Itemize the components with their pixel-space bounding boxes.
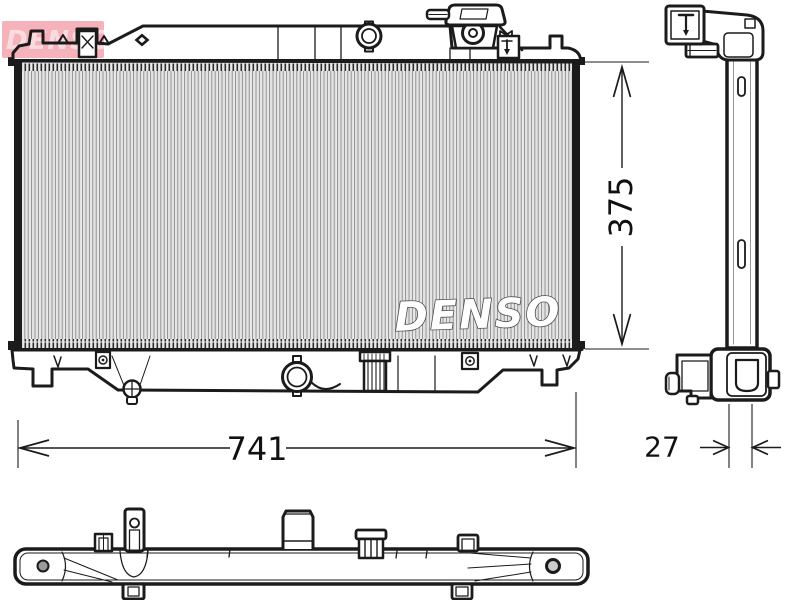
radiator-technical-drawing: DENSO DENSO [0,0,800,600]
side-bottom-assembly [666,349,779,404]
end-hole-left [38,561,49,572]
mount-bracket-right [462,353,478,369]
diagram-canvas: DENSO DENSO [0,0,800,600]
pipe-stub [283,511,313,549]
cooler-fitting [360,352,390,391]
side-view [666,6,779,404]
side-top-assembly [666,6,763,60]
post-lower-tab [123,584,144,599]
mount-post [125,509,144,551]
clip-connector [356,530,386,558]
side-tab [768,371,779,388]
depth-dimension: 27 [644,404,781,468]
core-brand-watermark: DENSO [394,289,562,341]
small-bracket [95,534,112,551]
cap-bracket [498,36,519,58]
mid-tab [458,535,478,551]
side-foot [687,396,698,404]
width-dimension-label: 741 [226,430,287,468]
end-hole-right [547,560,560,573]
side-core-bar [727,58,757,348]
outlet-body [711,349,770,400]
mount-bracket-left [96,352,110,368]
height-dimension-label: 375 [602,176,640,237]
mid-lower-tab [452,584,472,599]
front-view: DENSO DENSO [2,5,585,404]
width-dimension: 741 [18,392,576,468]
drain-petcock [124,381,141,405]
depth-dimension-label: 27 [644,431,680,464]
height-dimension: 375 [585,62,649,349]
bottom-view [15,509,588,599]
outlet-stub [666,373,679,394]
